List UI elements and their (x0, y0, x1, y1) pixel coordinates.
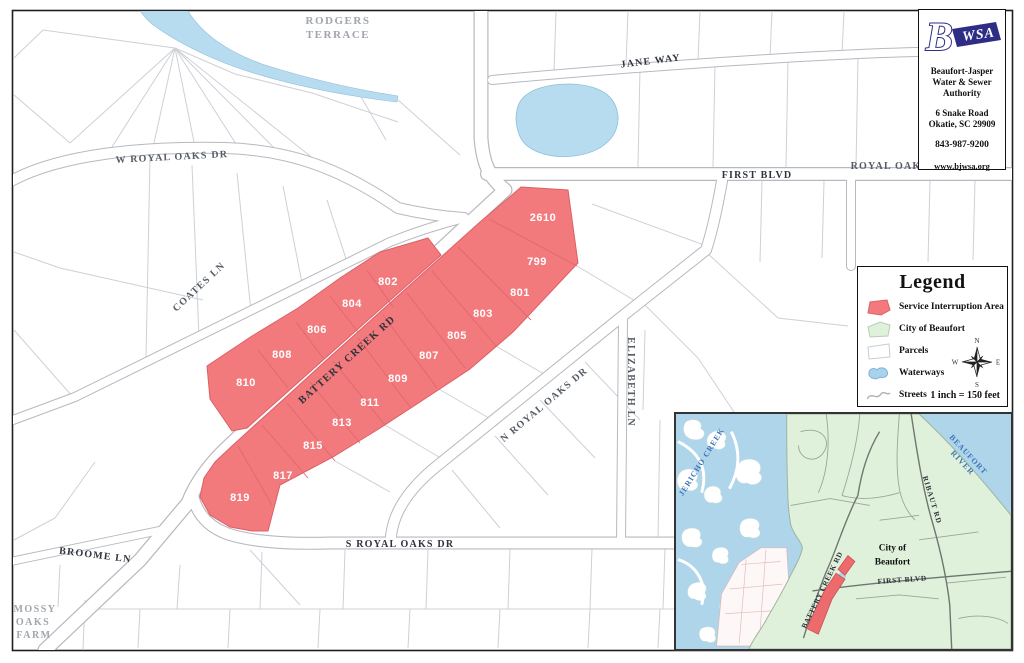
parcel-label-806: 806 (307, 324, 327, 336)
parcels-swatch (867, 343, 891, 360)
city-swatch (867, 321, 891, 338)
parcel-label-817: 817 (273, 470, 293, 482)
area-label-mossy-line3: FARM (16, 630, 51, 641)
inset-label-city-line2: Beaufort (875, 557, 911, 567)
compass-w: W (952, 359, 959, 367)
logo-wsa-text: WSA (961, 26, 995, 45)
legend: Legend Service Interruption Area City of… (857, 266, 1008, 407)
parcel-label-807: 807 (419, 350, 439, 362)
org-name-line2: Water & Sewer (919, 77, 1005, 88)
pond-waterway (516, 84, 618, 157)
legend-item-service-area: Service Interruption Area (858, 296, 1007, 318)
org-name-line1: Beaufort-Jasper (919, 66, 1005, 77)
parcel-label-801: 801 (510, 287, 530, 299)
org-name-line3: Authority (919, 88, 1005, 99)
parcel-label-808: 808 (272, 349, 292, 361)
legend-item-label: Waterways (899, 368, 944, 378)
parcel-label-802: 802 (378, 276, 398, 288)
legend-item-label: Service Interruption Area (899, 302, 1004, 312)
parcel-label-2610: 2610 (530, 212, 556, 224)
parcel-label-813: 813 (332, 417, 352, 429)
parcel-label-804: 804 (342, 298, 362, 310)
parcel-label-799: 799 (527, 256, 547, 268)
waterways-swatch (867, 365, 891, 382)
parcel-label-819: 819 (230, 492, 250, 504)
compass-n: N (974, 337, 979, 345)
parcel-label-811: 811 (360, 397, 379, 409)
compass-rose: N E S W (949, 329, 1005, 395)
legend-item-label: Parcels (899, 346, 928, 356)
address-line1: 6 Snake Road (919, 108, 1005, 119)
compass-s: S (975, 381, 979, 389)
streets-swatch (867, 387, 891, 404)
parcel-label-810: 810 (236, 377, 256, 389)
authority-info-box: B WSA Beaufort-Jasper Water & Sewer Auth… (918, 9, 1006, 170)
parcel-label-809: 809 (388, 373, 408, 385)
inset-label-city-line1: City of (879, 544, 907, 554)
street-label-royal-oak: ROYAL OAK (851, 161, 922, 172)
street-label-s-royal-oaks-dr: S ROYAL OAKS DR (346, 539, 455, 550)
area-label-rodgers-line1: RODGERS (306, 15, 371, 27)
area-label-mossy-line1: MOSSY (13, 604, 56, 615)
inset-locator-map: JERICHO CREEK BEAUFORT RIVER RIBAUT RD B… (674, 412, 1013, 651)
parcel-label-803: 803 (473, 308, 493, 320)
street-label-elizabeth-ln: ELIZABETH LN (625, 337, 636, 427)
bjwsa-logo: B WSA (922, 13, 1002, 57)
area-label-mossy-line2: OAKS (16, 617, 50, 628)
street-label-first-blvd: FIRST BLVD (722, 170, 793, 181)
legend-title: Legend (858, 271, 1007, 294)
service-interruption-map-page: 2610 799 801 803 805 807 809 811 813 815… (0, 0, 1024, 663)
phone-number: 843-987-9200 (919, 140, 1005, 150)
compass-e: E (996, 359, 1000, 367)
address-line2: Okatie, SC 29909 (919, 119, 1005, 130)
parcel-label-815: 815 (303, 440, 323, 452)
logo-b-glyph: B (925, 14, 953, 57)
parcel-label-805: 805 (447, 330, 467, 342)
legend-item-label: Streets (899, 390, 927, 400)
service-area-swatch (867, 299, 891, 316)
website-url: www.bjwsa.org (919, 161, 1005, 171)
area-label-rodgers-line2: TERRACE (306, 29, 370, 41)
